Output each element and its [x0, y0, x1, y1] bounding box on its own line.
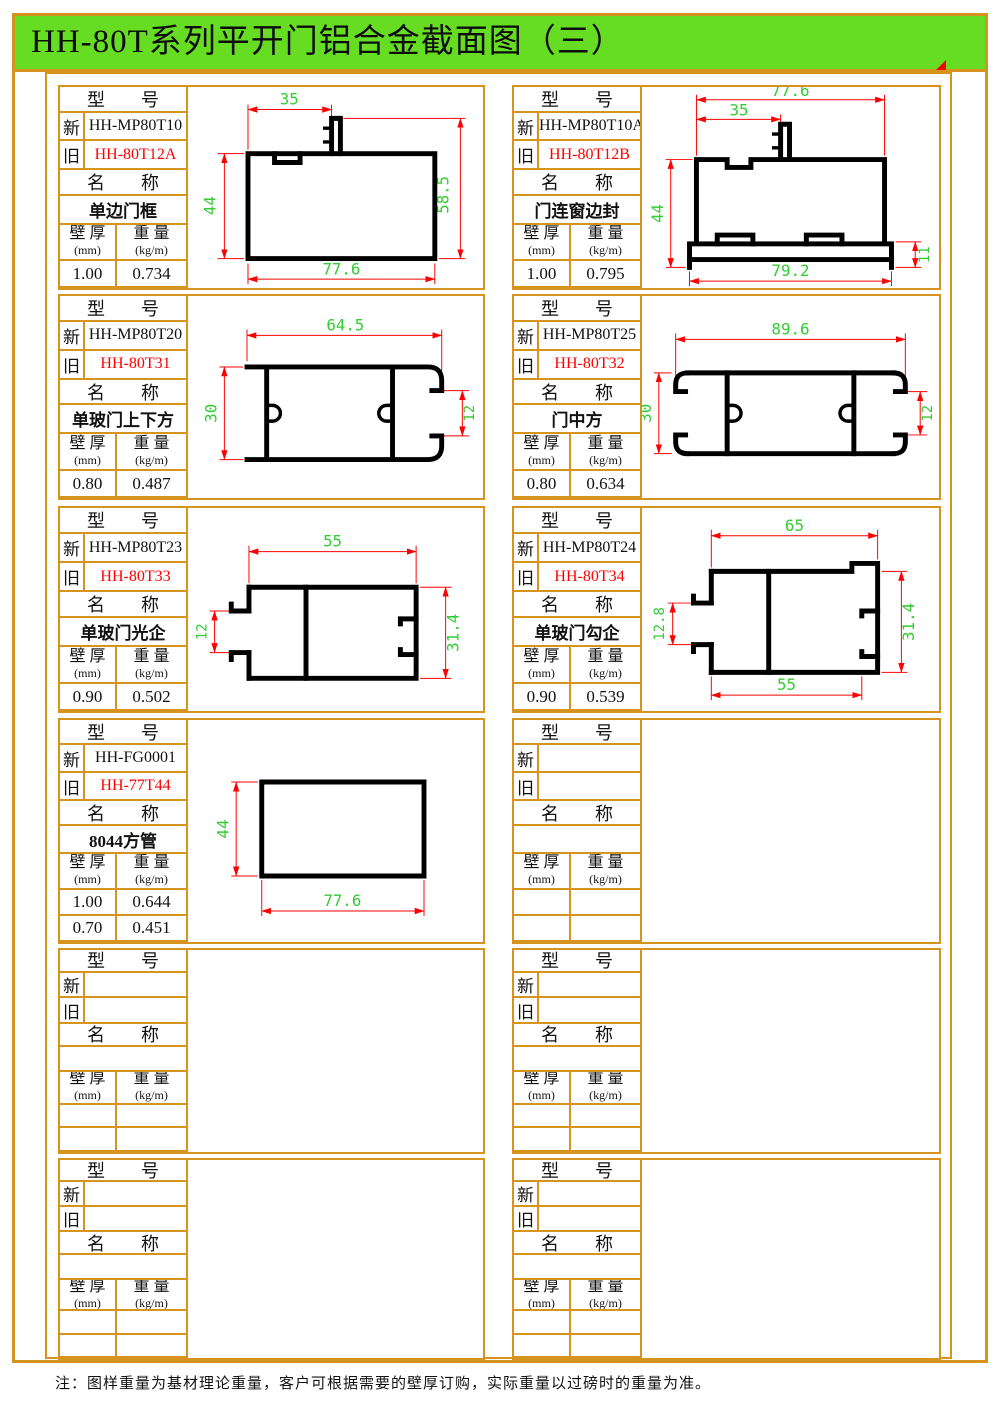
- new-tag: 新: [514, 1182, 539, 1205]
- new-tag: 新: [60, 973, 85, 996]
- name-header: 名 称: [514, 1232, 640, 1254]
- weight-header: 重 量(kg/m): [571, 854, 640, 888]
- data-row: [60, 1335, 186, 1358]
- profile-drawing: 65 12.8 31.4 55: [642, 508, 939, 711]
- profile-drawing: 35 44 58.5 77.6: [188, 87, 483, 288]
- profile-name: 单玻门勾企: [514, 618, 640, 647]
- profile-name: [514, 826, 640, 854]
- dim-label: 79.2: [771, 261, 809, 280]
- data-row: [514, 1128, 640, 1152]
- dim-label: 31.4: [443, 614, 462, 652]
- weight-header: 重 量(kg/m): [117, 434, 186, 469]
- panel-empty: 型 号 新 旧 名 称 壁 厚(mm) 重 量(kg/m): [512, 948, 941, 1154]
- data-row: [60, 1128, 186, 1152]
- weight-header: 重 量(kg/m): [117, 225, 186, 260]
- weight-header: 重 量(kg/m): [571, 647, 640, 682]
- profile-name: 8044方管: [60, 826, 186, 854]
- dim-label: 44: [201, 196, 220, 215]
- weight-header: 重 量(kg/m): [117, 854, 186, 888]
- model-header: 型 号: [60, 720, 186, 745]
- name-header: 名 称: [60, 1232, 186, 1254]
- wall-header: 壁 厚(mm): [60, 434, 117, 469]
- dim-label: 31.4: [899, 603, 918, 641]
- unit-header-row: 壁 厚(mm) 重 量(kg/m): [514, 434, 640, 471]
- model-header: 型 号: [514, 296, 640, 322]
- new-model: HH-MP80T20: [85, 326, 186, 344]
- new-tag: 新: [60, 1182, 85, 1205]
- panel-hh-mp80t23: 型 号 新HH-MP80T23 旧HH-80T33 名 称 单玻门光企 壁 厚(…: [58, 506, 485, 713]
- new-tag: 新: [60, 113, 85, 140]
- data-row: 0.700.451: [60, 916, 186, 942]
- unit-header-row: 壁 厚(mm) 重 量(kg/m): [514, 225, 640, 262]
- panel-hh-mp80t20: 型 号 新HH-MP80T20 旧HH-80T31 名 称 单玻门上下方 壁 厚…: [58, 294, 485, 500]
- profile-outline: [676, 373, 906, 454]
- unit-header-row: 壁 厚(mm) 重 量(kg/m): [60, 1280, 186, 1312]
- panel-hh-fg0001: 型 号 新HH-FG0001 旧HH-77T44 名 称 8044方管 壁 厚(…: [58, 718, 485, 944]
- data-row: [60, 1311, 186, 1334]
- spec-table: 型 号 新HH-MP80T23 旧HH-80T33 名 称 单玻门光企 壁 厚(…: [60, 508, 188, 711]
- dim-label: 64.5: [326, 315, 364, 334]
- new-tag: 新: [514, 745, 539, 771]
- profile-outline: [248, 118, 435, 258]
- spec-table: 型 号 新 旧 名 称 壁 厚(mm) 重 量(kg/m): [60, 1160, 188, 1358]
- profile-name: 门中方: [514, 405, 640, 434]
- old-tag: 旧: [60, 563, 85, 590]
- dim-label: 12: [920, 405, 936, 422]
- new-model: HH-MP80T25: [539, 326, 640, 344]
- corner-mark: [936, 60, 946, 70]
- panel-hh-mp80t24: 型 号 新HH-MP80T24 旧HH-80T34 名 称 单玻门勾企 壁 厚(…: [512, 506, 941, 713]
- profile-outline: [231, 587, 416, 678]
- dim-label: 44: [648, 204, 667, 223]
- spec-table: 型 号 新HH-MP80T25 旧HH-80T32 名 称 门中方 壁 厚(mm…: [514, 296, 642, 498]
- wall-header: 壁 厚(mm): [60, 854, 117, 888]
- new-tag: 新: [514, 973, 539, 996]
- profile-drawing-empty: [188, 1160, 483, 1358]
- data-row: 1.000.644: [60, 890, 186, 916]
- model-header: 型 号: [60, 950, 186, 973]
- model-header: 型 号: [514, 950, 640, 973]
- page-title: HH-80T系列平开门铝合金截面图（三）: [15, 16, 985, 68]
- new-tag: 新: [514, 534, 539, 561]
- data-row: 1.000.795: [514, 261, 640, 288]
- wall-header: 壁 厚(mm): [60, 1072, 117, 1102]
- name-header: 名 称: [60, 801, 186, 826]
- old-tag: 旧: [514, 998, 539, 1021]
- weight-header: 重 量(kg/m): [571, 1280, 640, 1310]
- dim-label: 55: [323, 532, 342, 551]
- data-row: [514, 1105, 640, 1129]
- dim-label: 12: [462, 405, 478, 422]
- spec-table: 型 号 新 旧 名 称 壁 厚(mm) 重 量(kg/m): [514, 1160, 642, 1358]
- data-row: [514, 1335, 640, 1358]
- dim-label: 65: [785, 516, 804, 535]
- profile-outline: [247, 367, 442, 460]
- unit-header-row: 壁 厚(mm) 重 量(kg/m): [514, 647, 640, 684]
- wall-header: 壁 厚(mm): [514, 1280, 571, 1310]
- data-row: [514, 916, 640, 942]
- wall-header: 壁 厚(mm): [514, 434, 571, 469]
- old-model: HH-77T44: [85, 777, 186, 795]
- unit-header-row: 壁 厚(mm) 重 量(kg/m): [60, 225, 186, 262]
- dim-label: 44: [213, 819, 232, 838]
- unit-header-row: 壁 厚(mm) 重 量(kg/m): [514, 854, 640, 890]
- spec-table: 型 号 新HH-FG0001 旧HH-77T44 名 称 8044方管 壁 厚(…: [60, 720, 188, 942]
- name-header: 名 称: [514, 801, 640, 826]
- data-row: 0.800.487: [60, 471, 186, 498]
- dim-label: 12.8: [652, 607, 668, 640]
- panel-hh-mp80t10: 型 号 新HH-MP80T10 旧HH-80T12A 名 称 单边门框 壁 厚(…: [58, 85, 485, 290]
- wall-header: 壁 厚(mm): [514, 854, 571, 888]
- profile-name: 单玻门上下方: [60, 405, 186, 434]
- spec-table: 型 号 新HH-MP80T24 旧HH-80T34 名 称 单玻门勾企 壁 厚(…: [514, 508, 642, 711]
- profile-drawing-empty: [642, 950, 939, 1152]
- dim-label: 77.6: [322, 259, 360, 278]
- panel-empty: 型 号 新 旧 名 称 壁 厚(mm) 重 量(kg/m): [512, 1158, 941, 1360]
- profile-drawing: 77.6 35 44 79.2 11: [642, 87, 939, 288]
- model-header: 型 号: [60, 87, 186, 113]
- old-model: HH-80T33: [85, 568, 186, 586]
- weight-header: 重 量(kg/m): [117, 1072, 186, 1102]
- old-tag: 旧: [514, 563, 539, 590]
- weight-header: 重 量(kg/m): [117, 1280, 186, 1310]
- dim-label: 12: [195, 623, 211, 640]
- wall-header: 壁 厚(mm): [60, 647, 117, 682]
- data-row: [514, 1311, 640, 1334]
- dim-label: 55: [777, 675, 796, 694]
- old-tag: 旧: [60, 773, 85, 799]
- profile-name: [60, 1255, 186, 1280]
- old-tag: 旧: [514, 351, 539, 378]
- profile-name: [514, 1255, 640, 1280]
- title-band: HH-80T系列平开门铝合金截面图（三）: [15, 16, 985, 72]
- unit-header-row: 壁 厚(mm) 重 量(kg/m): [60, 1072, 186, 1104]
- profile-drawing: 55 12 31.4: [188, 508, 483, 711]
- wall-header: 壁 厚(mm): [514, 225, 571, 260]
- new-model: HH-MP80T23: [85, 539, 186, 557]
- new-model: HH-FG0001: [85, 749, 186, 767]
- model-header: 型 号: [514, 1160, 640, 1182]
- model-header: 型 号: [60, 508, 186, 534]
- weight-header: 重 量(kg/m): [571, 434, 640, 469]
- wall-header: 壁 厚(mm): [514, 647, 571, 682]
- profile-name: 单边门框: [60, 196, 186, 225]
- panel-empty: 型 号 新 旧 名 称 壁 厚(mm) 重 量(kg/m): [512, 718, 941, 944]
- old-model: HH-80T12B: [539, 146, 640, 164]
- profile-drawing-empty: [188, 950, 483, 1152]
- data-row: [514, 890, 640, 916]
- old-model: HH-80T12A: [85, 146, 186, 164]
- dim-label: 11: [917, 246, 933, 263]
- model-header: 型 号: [60, 296, 186, 322]
- panel-hh-mp80t10a: 型 号 新HH-MP80T10A 旧HH-80T12B 名 称 门连窗边封 壁 …: [512, 85, 941, 290]
- model-header: 型 号: [514, 87, 640, 113]
- data-row: 0.900.539: [514, 684, 640, 711]
- dim-label: 77.6: [323, 891, 361, 910]
- panel-hh-mp80t25: 型 号 新HH-MP80T25 旧HH-80T32 名 称 门中方 壁 厚(mm…: [512, 294, 941, 500]
- old-model: HH-80T31: [85, 355, 186, 373]
- model-header: 型 号: [514, 720, 640, 745]
- spec-table: 型 号 新HH-MP80T20 旧HH-80T31 名 称 单玻门上下方 壁 厚…: [60, 296, 188, 498]
- profile-outline: [262, 782, 424, 876]
- footer-note: 注：图样重量为基材理论重量，客户可根据需要的壁厚订购，实际重量以过磅时的重量为准…: [55, 1372, 711, 1393]
- old-tag: 旧: [60, 998, 85, 1021]
- model-header: 型 号: [60, 1160, 186, 1182]
- profile-drawing-empty: [642, 720, 939, 942]
- dim-label: 35: [280, 90, 299, 109]
- new-tag: 新: [514, 113, 539, 140]
- weight-header: 重 量(kg/m): [571, 225, 640, 260]
- profile-name: [514, 1047, 640, 1072]
- unit-header-row: 壁 厚(mm) 重 量(kg/m): [514, 1072, 640, 1104]
- unit-header-row: 壁 厚(mm) 重 量(kg/m): [60, 434, 186, 471]
- new-model: HH-MP80T10: [85, 117, 186, 135]
- profile-name: 单玻门光企: [60, 618, 186, 647]
- spec-table: 型 号 新 旧 名 称 壁 厚(mm) 重 量(kg/m): [60, 950, 188, 1152]
- name-header: 名 称: [60, 170, 186, 196]
- profile-drawing-empty: [642, 1160, 939, 1358]
- profile-drawing: 64.5 30 12: [188, 296, 483, 498]
- panel-empty: 型 号 新 旧 名 称 壁 厚(mm) 重 量(kg/m): [58, 1158, 485, 1360]
- data-row: 0.900.502: [60, 684, 186, 711]
- old-model: HH-80T34: [539, 568, 640, 586]
- panel-empty: 型 号 新 旧 名 称 壁 厚(mm) 重 量(kg/m): [58, 948, 485, 1154]
- data-row: [60, 1105, 186, 1129]
- model-header: 型 号: [514, 508, 640, 534]
- weight-header: 重 量(kg/m): [571, 1072, 640, 1102]
- dim-label: 89.6: [771, 319, 809, 338]
- dim-label: 77.6: [771, 87, 809, 100]
- old-tag: 旧: [514, 141, 539, 168]
- spec-table: 型 号 新HH-MP80T10A 旧HH-80T12B 名 称 门连窗边封 壁 …: [514, 87, 642, 288]
- spec-table: 型 号 新 旧 名 称 壁 厚(mm) 重 量(kg/m): [514, 720, 642, 942]
- profile-outline: [690, 124, 892, 267]
- old-tag: 旧: [60, 141, 85, 168]
- profile-name: 门连窗边封: [514, 196, 640, 225]
- name-header: 名 称: [514, 1024, 640, 1047]
- name-header: 名 称: [60, 380, 186, 406]
- new-tag: 新: [60, 322, 85, 349]
- data-row: 1.000.734: [60, 261, 186, 288]
- name-header: 名 称: [514, 170, 640, 196]
- wall-header: 壁 厚(mm): [514, 1072, 571, 1102]
- profile-drawing: 44 77.6: [188, 720, 483, 942]
- name-header: 名 称: [514, 380, 640, 406]
- new-model: HH-MP80T10A: [539, 117, 640, 135]
- old-tag: 旧: [60, 351, 85, 378]
- new-tag: 新: [514, 322, 539, 349]
- new-tag: 新: [60, 534, 85, 561]
- unit-header-row: 壁 厚(mm) 重 量(kg/m): [514, 1280, 640, 1312]
- unit-header-row: 壁 厚(mm) 重 量(kg/m): [60, 854, 186, 890]
- old-tag: 旧: [60, 1207, 85, 1230]
- new-tag: 新: [60, 745, 85, 771]
- name-header: 名 称: [514, 592, 640, 618]
- name-header: 名 称: [60, 1024, 186, 1047]
- old-tag: 旧: [514, 1207, 539, 1230]
- wall-header: 壁 厚(mm): [60, 1280, 117, 1310]
- dim-label: 35: [729, 101, 748, 120]
- name-header: 名 称: [60, 592, 186, 618]
- old-model: HH-80T32: [539, 355, 640, 373]
- spec-table: 型 号 新HH-MP80T10 旧HH-80T12A 名 称 单边门框 壁 厚(…: [60, 87, 188, 288]
- spec-table: 型 号 新 旧 名 称 壁 厚(mm) 重 量(kg/m): [514, 950, 642, 1152]
- unit-header-row: 壁 厚(mm) 重 量(kg/m): [60, 647, 186, 684]
- new-model: HH-MP80T24: [539, 539, 640, 557]
- profile-outline: [693, 563, 877, 672]
- old-tag: 旧: [514, 773, 539, 799]
- data-row: 0.800.634: [514, 471, 640, 498]
- dim-label: 30: [642, 404, 655, 423]
- profile-name: [60, 1047, 186, 1072]
- dim-label: 30: [202, 404, 221, 423]
- profile-drawing: 89.6 30 12: [642, 296, 939, 498]
- wall-header: 壁 厚(mm): [60, 225, 117, 260]
- weight-header: 重 量(kg/m): [117, 647, 186, 682]
